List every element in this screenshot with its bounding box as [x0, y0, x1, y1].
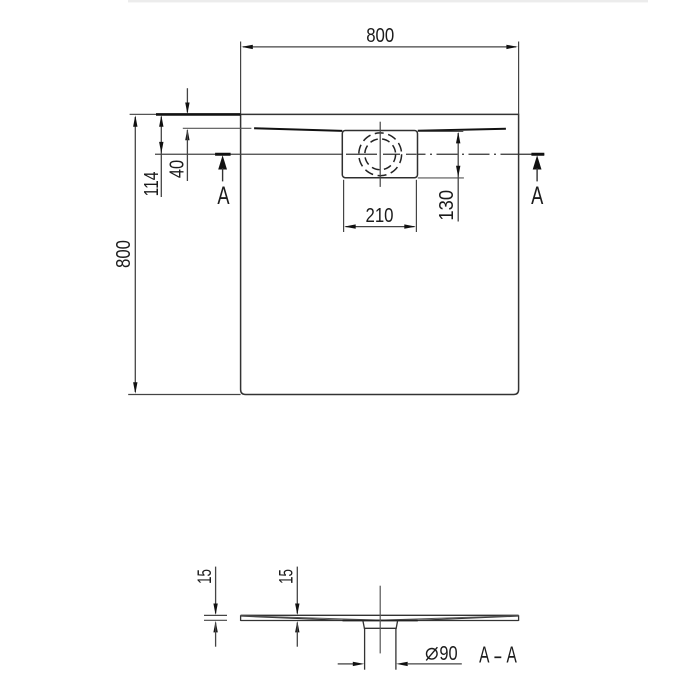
- svg-text:A: A: [531, 181, 544, 210]
- svg-text:114: 114: [140, 172, 162, 197]
- svg-text:A: A: [217, 181, 230, 210]
- svg-text:210: 210: [365, 203, 393, 226]
- svg-text:800: 800: [366, 24, 394, 47]
- svg-text:15: 15: [195, 569, 216, 584]
- svg-text:15: 15: [276, 569, 297, 584]
- svg-text:800: 800: [112, 240, 135, 268]
- svg-text:A: A: [479, 642, 490, 668]
- svg-text:40: 40: [165, 160, 188, 178]
- svg-text:130: 130: [437, 190, 459, 221]
- svg-text:A: A: [507, 642, 518, 668]
- svg-text:90: 90: [439, 641, 457, 664]
